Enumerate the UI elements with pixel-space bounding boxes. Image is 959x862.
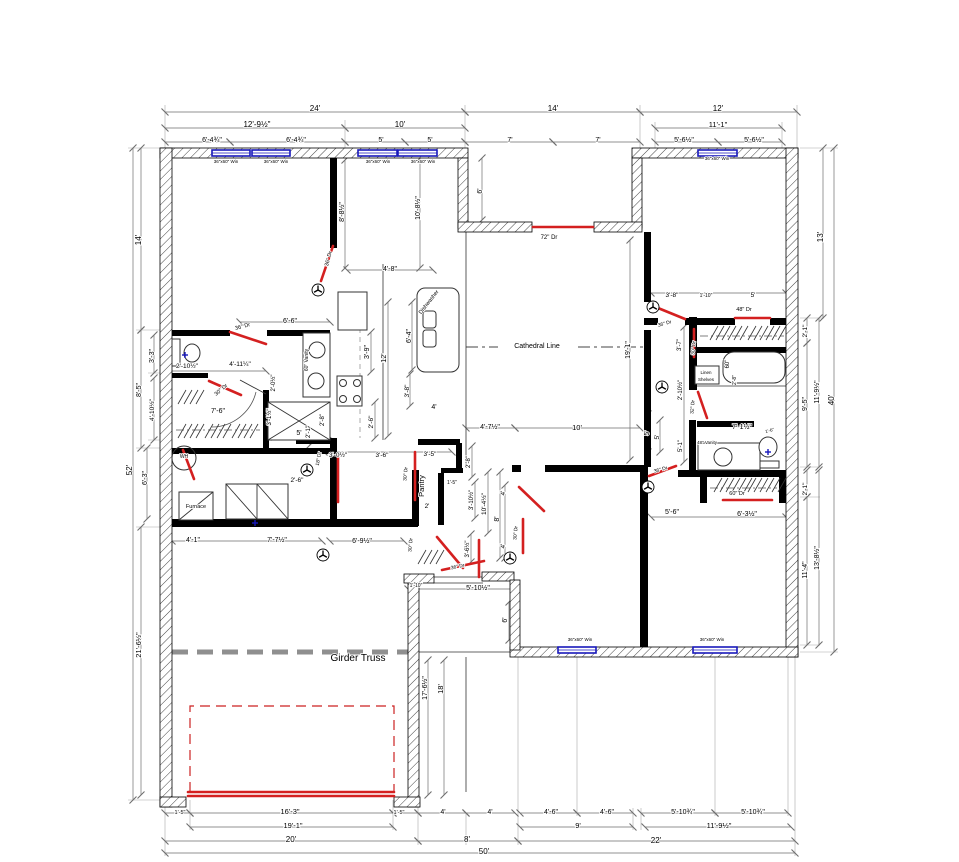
- svg-text:8'-8½": 8'-8½": [338, 202, 346, 222]
- svg-text:52': 52': [125, 464, 134, 475]
- svg-text:1'-5": 1'-5": [447, 480, 457, 486]
- svg-text:13'-8½": 13'-8½": [813, 546, 821, 570]
- svg-text:4'-6": 4'-6": [600, 809, 614, 816]
- svg-text:Girder Truss: Girder Truss: [330, 653, 385, 664]
- svg-text:5'-10¾": 5'-10¾": [671, 809, 695, 816]
- svg-text:3'-1½": 3'-1½": [266, 409, 273, 426]
- svg-text:16'-3": 16'-3": [280, 807, 299, 816]
- svg-text:12'-9½": 12'-9½": [243, 120, 270, 129]
- svg-text:5'-6½": 5'-6½": [674, 136, 694, 144]
- svg-text:36" Dr: 36" Dr: [324, 250, 334, 267]
- svg-text:3'-6": 3'-6": [376, 452, 390, 459]
- svg-text:7': 7': [595, 137, 600, 144]
- svg-text:Shelves: Shelves: [698, 377, 715, 382]
- svg-text:4': 4': [487, 809, 492, 816]
- svg-text:12': 12': [381, 353, 388, 362]
- svg-text:72" Dr: 72" Dr: [541, 235, 558, 241]
- svg-text:30" Dr: 30" Dr: [690, 340, 697, 355]
- svg-text:12': 12': [713, 104, 724, 113]
- svg-text:2'-10½": 2'-10½": [176, 362, 199, 370]
- svg-text:4'-10½": 4'-10½": [148, 398, 156, 421]
- svg-text:7': 7': [507, 137, 512, 144]
- dimension-text: 24'12'-9½"10'6'-4¾"6'-4¾"5'5'14'7'7'12'1…: [125, 104, 836, 856]
- svg-text:4'-6": 4'-6": [544, 809, 558, 816]
- svg-text:5': 5': [751, 292, 756, 299]
- svg-text:3'-10½": 3'-10½": [468, 490, 475, 510]
- svg-text:48" Vanity: 48" Vanity: [697, 440, 718, 445]
- svg-text:10'-4½": 10'-4½": [480, 492, 488, 515]
- svg-text:6'-4": 6'-4": [406, 329, 413, 343]
- svg-text:3'-5": 3'-5": [424, 451, 438, 458]
- svg-text:4': 4': [500, 544, 507, 549]
- svg-text:1'-10": 1'-10": [700, 293, 713, 299]
- svg-text:32" Dr: 32" Dr: [689, 399, 696, 414]
- svg-text:6': 6': [502, 617, 509, 622]
- svg-text:6'-6": 6'-6": [283, 318, 297, 325]
- svg-text:36"x60" Win: 36"x60" Win: [366, 159, 391, 164]
- svg-text:30" Dr: 30" Dr: [407, 537, 414, 552]
- svg-text:5'-10½": 5'-10½": [466, 584, 490, 592]
- svg-text:1'-10": 1'-10": [410, 583, 423, 589]
- svg-text:36"x60" Win: 36"x60" Win: [705, 156, 730, 161]
- svg-text:22': 22': [651, 836, 662, 845]
- svg-text:5'-6": 5'-6": [665, 509, 679, 516]
- svg-text:6'-9½": 6'-9½": [352, 537, 372, 545]
- svg-text:21'-6½": 21'-6½": [134, 632, 143, 658]
- svg-text:6'-3": 6'-3": [142, 471, 149, 485]
- extension-lines: [128, 105, 838, 856]
- svg-text:5': 5': [644, 430, 651, 435]
- floor-plan-page: 24'12'-9½"10'6'-4¾"6'-4¾"5'5'14'7'7'12'1…: [0, 0, 959, 862]
- svg-text:60": 60": [725, 360, 731, 369]
- svg-text:18" Dr: 18" Dr: [315, 451, 323, 466]
- svg-text:11'-1": 11'-1": [709, 120, 728, 129]
- svg-text:2'-8": 2'-8": [732, 375, 738, 385]
- svg-text:4'-7½": 4'-7½": [480, 423, 500, 431]
- svg-text:4'-11¼": 4'-11¼": [229, 361, 251, 368]
- svg-text:2'-1": 2'-1": [306, 426, 312, 438]
- svg-text:3'-9": 3'-9": [364, 345, 371, 359]
- svg-text:8': 8': [464, 835, 470, 844]
- svg-text:4': 4': [431, 404, 436, 411]
- svg-text:7'-1½": 7'-1½": [732, 423, 752, 431]
- svg-text:4'-8": 4'-8": [383, 266, 397, 273]
- svg-text:36"x60" Win: 36"x60" Win: [214, 159, 239, 164]
- svg-text:2'-8": 2'-8": [320, 414, 326, 426]
- svg-text:5'-1": 5'-1": [678, 440, 684, 452]
- svg-text:2'-6": 2'-6": [368, 415, 375, 429]
- svg-text:7'-7½": 7'-7½": [267, 536, 287, 544]
- svg-text:3'-8": 3'-8": [404, 384, 411, 398]
- svg-text:19'-1": 19'-1": [283, 821, 302, 830]
- svg-text:50': 50': [479, 847, 490, 856]
- svg-text:40': 40': [827, 394, 836, 405]
- svg-text:4': 4': [500, 491, 507, 496]
- svg-text:4': 4': [440, 809, 445, 816]
- svg-text:6'-3½": 6'-3½": [737, 510, 757, 518]
- svg-text:4'-1": 4'-1": [186, 537, 200, 544]
- svg-text:Cathedral Line: Cathedral Line: [514, 343, 560, 350]
- svg-text:11'-9½": 11'-9½": [813, 380, 821, 404]
- svg-text:48" Dr: 48" Dr: [736, 307, 752, 313]
- svg-text:36"x60" Win: 36"x60" Win: [568, 637, 593, 642]
- svg-text:24': 24': [310, 104, 321, 113]
- svg-text:10': 10': [572, 423, 582, 432]
- svg-text:10': 10': [395, 120, 406, 129]
- svg-text:1'-5": 1'-5": [175, 810, 186, 816]
- svg-text:2'-1": 2'-1": [802, 324, 809, 338]
- svg-text:2': 2': [425, 503, 430, 510]
- svg-text:19'-1": 19'-1": [625, 341, 632, 359]
- svg-text:30" Dr: 30" Dr: [512, 525, 519, 540]
- svg-text:5': 5': [427, 137, 432, 144]
- svg-text:5'-6½": 5'-6½": [744, 136, 764, 144]
- svg-text:9': 9': [575, 821, 581, 830]
- svg-text:2'-10½": 2'-10½": [677, 380, 684, 400]
- svg-text:WH: WH: [180, 454, 189, 460]
- svg-text:5': 5': [296, 430, 301, 437]
- svg-text:36"x60" Win: 36"x60" Win: [411, 159, 436, 164]
- svg-text:36" Dr: 36" Dr: [450, 563, 465, 572]
- svg-text:36" Dr: 36" Dr: [235, 322, 252, 332]
- svg-text:14': 14': [134, 234, 143, 245]
- svg-text:10'-8½": 10'-8½": [414, 196, 422, 220]
- svg-text:9'-5": 9'-5": [802, 397, 809, 411]
- svg-text:36" Dr: 36" Dr: [657, 319, 672, 329]
- svg-text:11'-9½": 11'-9½": [707, 821, 732, 830]
- svg-text:11'-4": 11'-4": [802, 561, 809, 579]
- garage-door-dashed: [190, 706, 394, 792]
- svg-text:5': 5': [378, 137, 383, 144]
- svg-text:6'-4¾": 6'-4¾": [202, 137, 222, 144]
- svg-text:18': 18': [436, 684, 445, 694]
- svg-text:1'-6": 1'-6": [765, 427, 775, 434]
- svg-text:5': 5': [654, 435, 661, 440]
- svg-text:2'-1": 2'-1": [802, 482, 809, 496]
- svg-text:60" Dr: 60" Dr: [729, 491, 745, 497]
- svg-text:3'-8": 3'-8": [666, 292, 680, 299]
- svg-text:2'-8": 2'-8": [466, 456, 472, 468]
- fixture-thin-lines: [338, 232, 786, 792]
- svg-text:8'-5": 8'-5": [136, 383, 143, 397]
- svg-text:Furnace: Furnace: [186, 504, 206, 510]
- svg-text:17'-6½": 17'-6½": [421, 676, 429, 700]
- svg-text:36"x60" Win: 36"x60" Win: [264, 159, 289, 164]
- svg-text:7'-6": 7'-6": [211, 408, 225, 415]
- svg-text:8': 8': [494, 516, 501, 521]
- svg-text:6'-4¾": 6'-4¾": [286, 137, 306, 144]
- svg-text:Pantry: Pantry: [417, 475, 426, 497]
- svg-text:6': 6': [477, 188, 484, 193]
- svg-text:3'-6½": 3'-6½": [464, 541, 471, 558]
- svg-text:Linen: Linen: [700, 370, 712, 375]
- svg-text:60" Vanity: 60" Vanity: [304, 348, 310, 371]
- svg-text:3'-0½": 3'-0½": [329, 451, 348, 459]
- floor-plan-canvas: 24'12'-9½"10'6'-4¾"6'-4¾"5'5'14'7'7'12'1…: [0, 0, 959, 862]
- svg-text:2'-6": 2'-6": [291, 477, 305, 484]
- svg-text:5'-10¾": 5'-10¾": [741, 809, 765, 816]
- svg-text:1'-5": 1'-5": [394, 810, 405, 816]
- svg-text:14': 14': [548, 104, 559, 113]
- svg-text:36"x60" Win: 36"x60" Win: [700, 637, 725, 642]
- svg-text:30" Dr: 30" Dr: [402, 466, 409, 481]
- svg-text:13': 13': [816, 231, 825, 242]
- svg-text:20': 20': [286, 835, 297, 844]
- svg-text:36" Dr: 36" Dr: [653, 465, 668, 475]
- svg-text:3'-3": 3'-3": [149, 349, 156, 363]
- svg-text:3'-7": 3'-7": [677, 339, 683, 351]
- svg-text:2'-0½": 2'-0½": [270, 375, 277, 392]
